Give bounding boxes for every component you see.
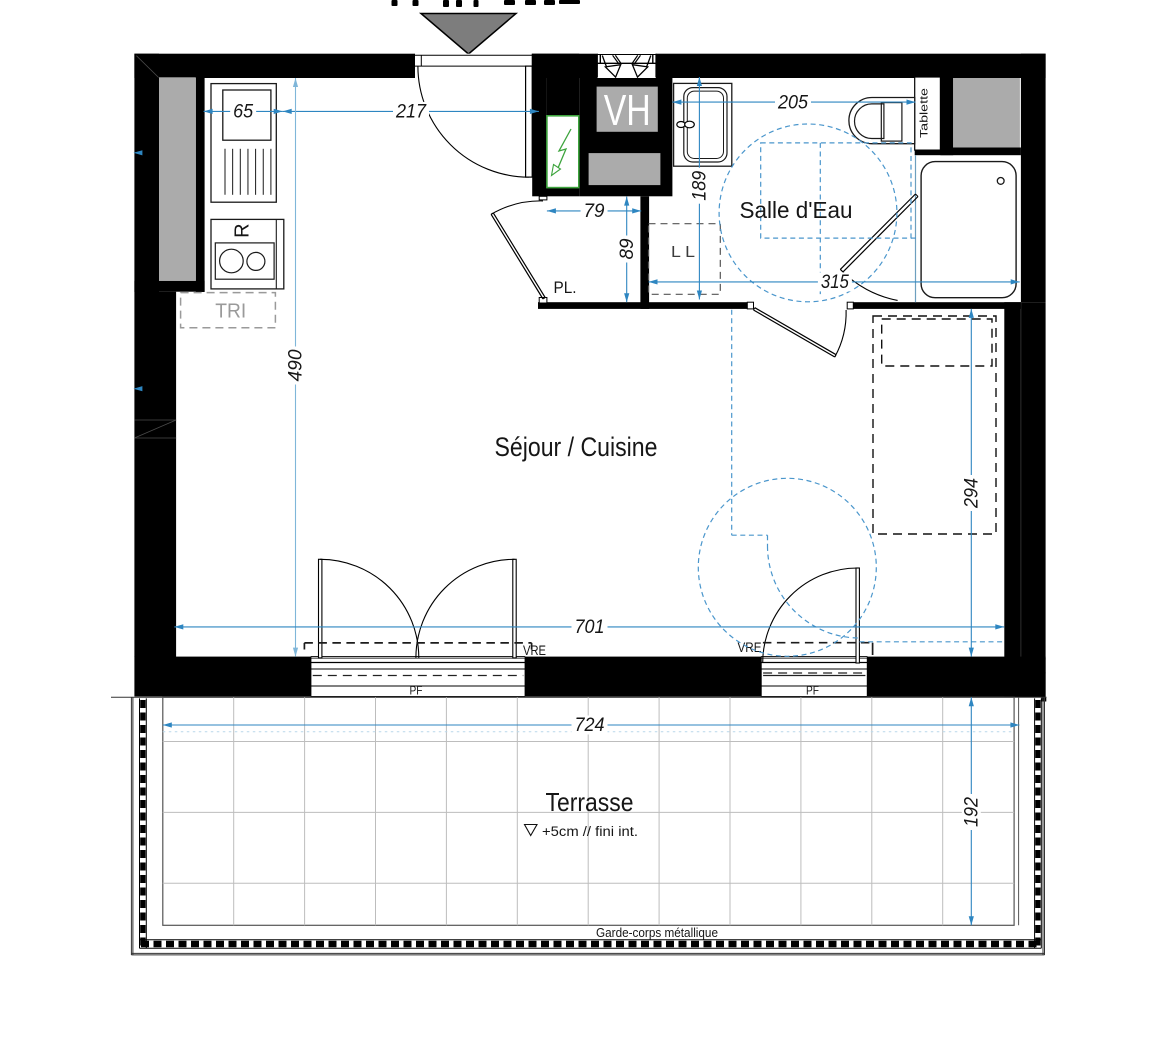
svg-text:Séjour / Cuisine: Séjour / Cuisine: [495, 432, 658, 462]
svg-text:294: 294: [962, 478, 983, 509]
svg-text:PF: PF: [410, 684, 423, 698]
svg-text:+5cm // fini int.: +5cm // fini int.: [542, 824, 638, 839]
svg-text:65: 65: [233, 102, 253, 123]
svg-text:701: 701: [575, 617, 605, 638]
svg-text:VH: VH: [604, 86, 651, 135]
svg-text:PL.: PL.: [554, 278, 577, 297]
svg-text:Terrasse: Terrasse: [546, 787, 634, 817]
svg-text:724: 724: [575, 715, 605, 736]
svg-text:Salle d'Eau: Salle d'Eau: [740, 197, 853, 223]
svg-text:VRE: VRE: [523, 642, 546, 658]
svg-text:PF: PF: [806, 684, 819, 698]
svg-text:R: R: [232, 223, 254, 237]
svg-text:217: 217: [395, 102, 427, 123]
svg-text:Tablette: Tablette: [919, 88, 931, 138]
svg-text:L L: L L: [671, 244, 695, 261]
svg-text:490: 490: [286, 349, 307, 381]
svg-text:192: 192: [962, 797, 983, 827]
svg-text:VRE: VRE: [738, 639, 762, 655]
svg-text:89: 89: [617, 238, 638, 259]
svg-text:Garde-corps métallique: Garde-corps métallique: [596, 925, 718, 940]
svg-text:TRI: TRI: [215, 301, 246, 323]
svg-text:189: 189: [690, 170, 711, 200]
svg-text:79: 79: [584, 201, 605, 222]
svg-text:315: 315: [821, 272, 849, 293]
svg-text:205: 205: [777, 92, 808, 113]
